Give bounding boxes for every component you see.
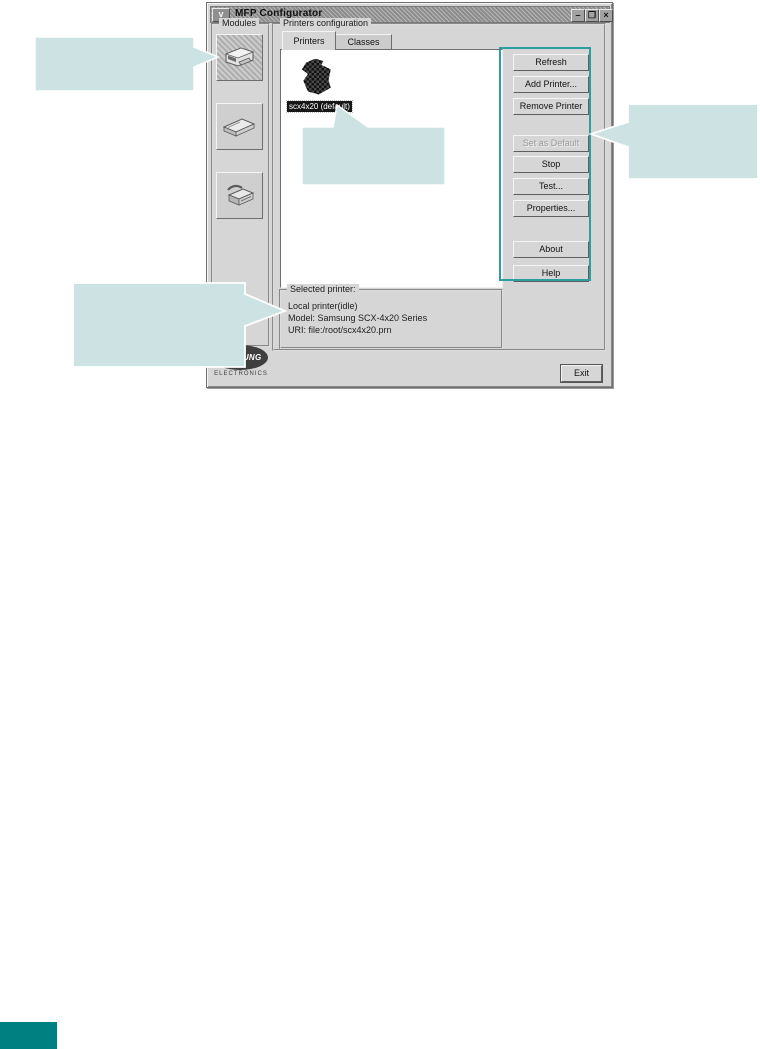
- manual-page: { "window": { "title": "MFP Configurator…: [0, 0, 760, 1049]
- callout-buttons: [589, 102, 760, 182]
- minimize-icon[interactable]: –: [571, 9, 585, 22]
- page-corner-block: [0, 1022, 57, 1049]
- selected-printer-uri: URI: file:/root/scx4x20.prn: [288, 324, 427, 336]
- module-button-scanner[interactable]: [216, 103, 263, 150]
- scanner-module-icon: [221, 112, 258, 142]
- callout-selected-printer: [71, 281, 289, 371]
- maximize-icon[interactable]: ❐: [585, 9, 599, 22]
- module-button-printer[interactable]: [216, 34, 263, 81]
- selected-printer-status: Local printer(idle): [288, 300, 427, 312]
- selected-printer-model: Model: Samsung SCX-4x20 Series: [288, 312, 427, 324]
- callout-modules: [34, 34, 220, 94]
- tab-classes[interactable]: Classes: [335, 34, 392, 50]
- module-button-fax[interactable]: [216, 172, 263, 219]
- callout-printer-item: [300, 103, 450, 189]
- titlebar[interactable]: v MFP Configurator – ❐ ×: [210, 6, 610, 23]
- printer-module-icon: [221, 43, 258, 73]
- tab-printers[interactable]: Printers: [282, 31, 336, 50]
- selected-printer-label: Selected printer:: [287, 284, 359, 294]
- fax-module-icon: [221, 181, 258, 211]
- modules-frame-label: Modules: [219, 18, 259, 28]
- samsung-logo-subtitle: ELECTRONICS: [212, 371, 270, 377]
- printers-configuration-label: Printers configuration: [280, 18, 371, 28]
- selected-printer-frame: Selected printer: Local printer(idle) Mo…: [279, 289, 503, 349]
- exit-button[interactable]: Exit: [561, 365, 602, 382]
- close-icon[interactable]: ×: [599, 9, 613, 22]
- buttons-highlight-outline: [499, 47, 591, 281]
- printer-selected-icon: [299, 58, 335, 96]
